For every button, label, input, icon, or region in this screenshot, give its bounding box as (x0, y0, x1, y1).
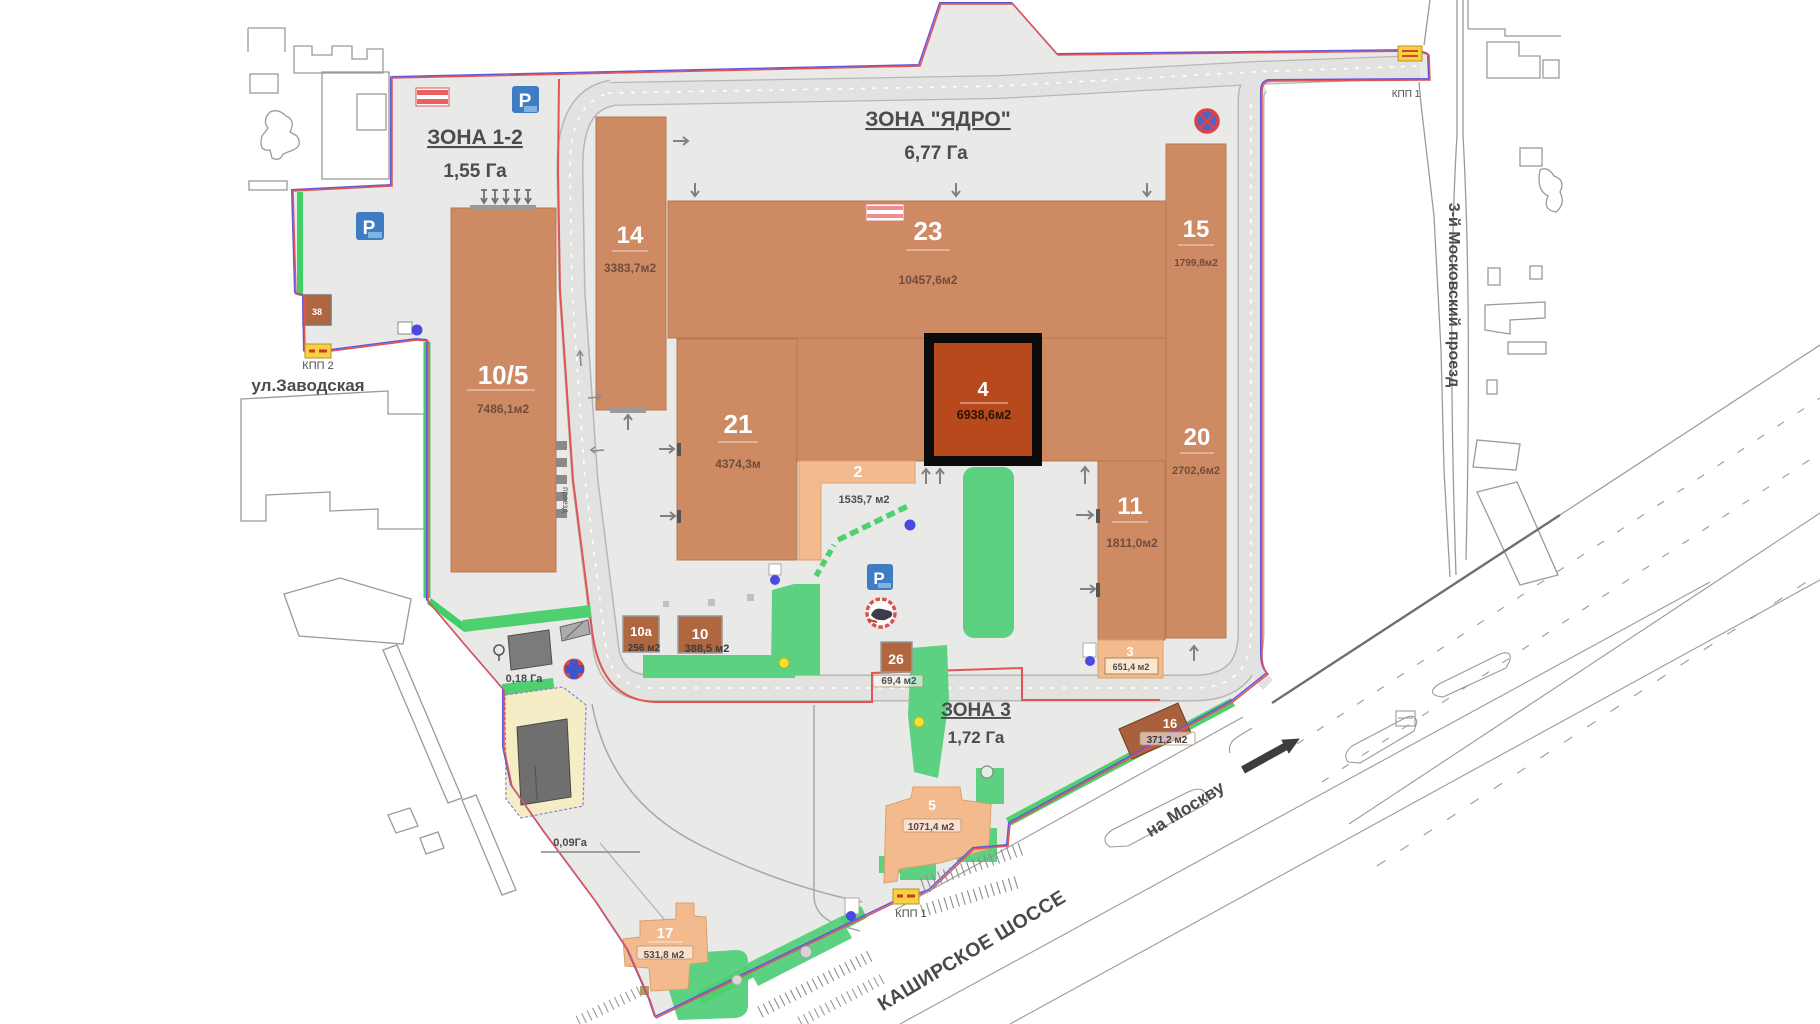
svg-text:371,2 м2: 371,2 м2 (1147, 735, 1188, 746)
svg-text:10457,6м2: 10457,6м2 (899, 273, 958, 287)
svg-text:1,55 Га: 1,55 Га (443, 161, 507, 182)
svg-text:3383,7м2: 3383,7м2 (604, 261, 657, 275)
svg-text:21: 21 (724, 409, 753, 439)
svg-text:6938,6м2: 6938,6м2 (957, 408, 1011, 422)
svg-text:КПП 1: КПП 1 (895, 908, 926, 920)
svg-text:6,77 Га: 6,77 Га (904, 143, 968, 164)
svg-text:14: 14 (617, 222, 644, 249)
svg-text:4374,3м: 4374,3м (715, 457, 761, 471)
svg-text:69,4 м2: 69,4 м2 (881, 676, 917, 687)
svg-text:388,5 м2: 388,5 м2 (685, 643, 730, 655)
svg-text:651,4 м2: 651,4 м2 (1113, 662, 1150, 672)
svg-text:0,09Га: 0,09Га (553, 837, 588, 849)
svg-text:26: 26 (888, 651, 904, 667)
svg-text:23: 23 (914, 216, 943, 246)
svg-text:КПП 1: КПП 1 (1392, 89, 1421, 100)
svg-text:256 м2: 256 м2 (628, 643, 661, 654)
svg-text:16: 16 (1163, 716, 1177, 731)
svg-text:2702,6м2: 2702,6м2 (1172, 465, 1220, 477)
svg-text:15: 15 (1183, 216, 1210, 243)
svg-text:1811,0м2: 1811,0м2 (1106, 536, 1158, 550)
svg-text:0,18 Га: 0,18 Га (506, 673, 544, 685)
svg-text:10/5: 10/5 (478, 360, 529, 390)
svg-text:10: 10 (692, 626, 709, 643)
svg-text:7486,1м2: 7486,1м2 (477, 402, 530, 416)
svg-text:5: 5 (928, 797, 936, 813)
svg-text:531,8 м2: 531,8 м2 (644, 950, 685, 961)
svg-text:ЗОНА 1-2: ЗОНА 1-2 (427, 126, 523, 149)
svg-text:11: 11 (1117, 493, 1142, 520)
svg-text:ул.Заводская: ул.Заводская (251, 376, 364, 395)
svg-text:3: 3 (1126, 644, 1133, 659)
svg-text:1535,7 м2: 1535,7 м2 (839, 494, 890, 506)
svg-text:ЗОНА 3: ЗОНА 3 (941, 700, 1011, 721)
svg-text:3-й Московский проезд: 3-й Московский проезд (1445, 203, 1462, 388)
svg-text:ЗОНА "ЯДРО": ЗОНА "ЯДРО" (865, 108, 1010, 131)
svg-text:2: 2 (854, 464, 863, 481)
svg-text:38: 38 (312, 307, 322, 317)
svg-text:10а: 10а (630, 624, 652, 639)
svg-text:проезд: проезд (561, 487, 570, 513)
svg-text:1799,8м2: 1799,8м2 (1174, 258, 1218, 269)
svg-text:КПП 2: КПП 2 (302, 360, 333, 372)
svg-text:4: 4 (977, 379, 989, 401)
svg-text:1071,4 м2: 1071,4 м2 (908, 822, 955, 833)
svg-text:20: 20 (1184, 424, 1211, 451)
svg-text:1,72 Га: 1,72 Га (948, 728, 1005, 747)
svg-text:17: 17 (657, 925, 674, 942)
